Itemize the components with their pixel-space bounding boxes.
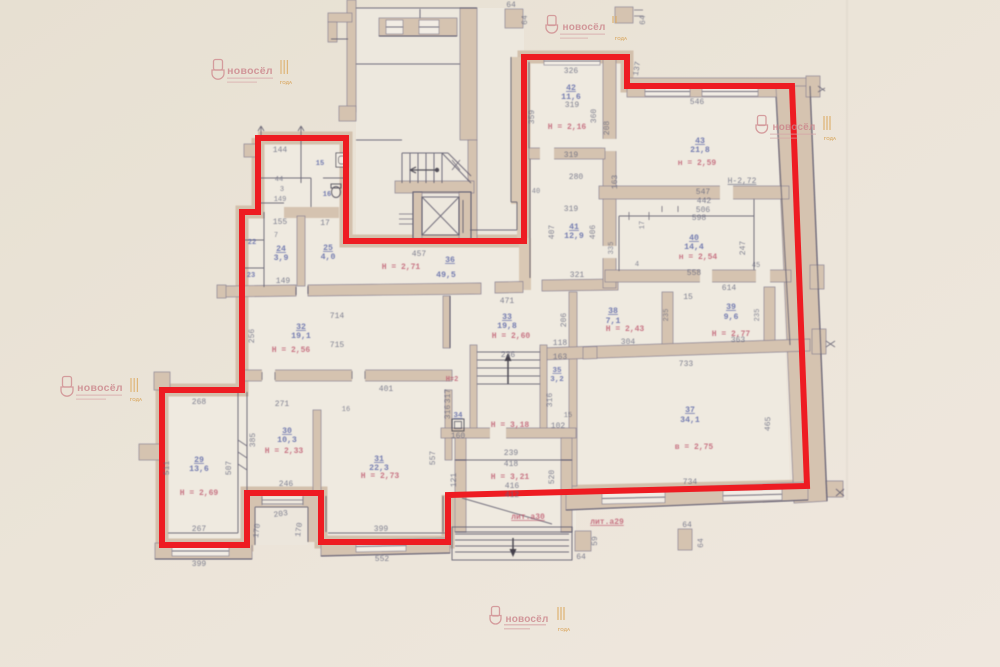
- svg-text:160: 160: [451, 432, 466, 441]
- svg-text:360: 360: [590, 109, 599, 124]
- svg-text:3,9: 3,9: [274, 254, 289, 263]
- svg-text:4: 4: [635, 261, 639, 269]
- svg-text:3,2: 3,2: [550, 376, 564, 384]
- svg-text:465: 465: [764, 416, 774, 431]
- svg-text:149: 149: [276, 277, 291, 286]
- svg-text:40: 40: [689, 234, 699, 243]
- svg-text:10,3: 10,3: [277, 436, 297, 445]
- svg-text:29: 29: [194, 456, 204, 465]
- svg-text:316: 316: [546, 393, 555, 408]
- svg-text:7: 7: [274, 232, 278, 240]
- svg-text:25: 25: [323, 244, 333, 253]
- svg-text:34,1: 34,1: [680, 416, 700, 425]
- svg-text:Н=2: Н=2: [446, 376, 459, 384]
- svg-text:19,1: 19,1: [291, 332, 311, 341]
- svg-text:Н-2,72: Н-2,72: [728, 177, 757, 186]
- svg-text:н = 2,54: н = 2,54: [679, 253, 718, 262]
- svg-text:Н = 2,71: Н = 2,71: [382, 263, 421, 272]
- svg-text:280: 280: [569, 173, 584, 182]
- svg-text:14,4: 14,4: [684, 243, 704, 252]
- svg-text:23: 23: [247, 272, 255, 280]
- svg-text:Н = 2,43: Н = 2,43: [606, 325, 645, 334]
- svg-text:16: 16: [323, 191, 331, 199]
- svg-text:40: 40: [532, 188, 540, 196]
- svg-text:399: 399: [374, 525, 389, 534]
- svg-text:в = 2,75: в = 2,75: [675, 443, 714, 452]
- svg-text:новосёл: новосёл: [227, 65, 273, 77]
- svg-text:64: 64: [506, 1, 516, 10]
- svg-text:471: 471: [500, 297, 515, 306]
- svg-text:новосёл: новосёл: [505, 614, 548, 625]
- svg-text:412: 412: [505, 491, 520, 500]
- svg-text:41: 41: [569, 223, 579, 232]
- svg-text:ГОДА: ГОДА: [615, 36, 628, 41]
- svg-text:118: 118: [553, 339, 568, 348]
- svg-text:21,8: 21,8: [690, 146, 710, 155]
- svg-text:457: 457: [412, 250, 427, 259]
- svg-text:335: 335: [608, 242, 616, 255]
- svg-text:ГОДА: ГОДА: [558, 627, 571, 632]
- svg-text:558: 558: [687, 269, 702, 278]
- svg-text:15: 15: [683, 293, 693, 302]
- svg-text:38: 38: [608, 307, 618, 316]
- svg-text:546: 546: [690, 98, 705, 107]
- svg-text:144: 144: [273, 146, 288, 155]
- svg-text:ГОДА: ГОДА: [130, 397, 143, 402]
- svg-text:17: 17: [639, 221, 647, 229]
- svg-text:3: 3: [280, 186, 284, 194]
- svg-text:15: 15: [316, 160, 324, 168]
- svg-text:34: 34: [453, 412, 463, 420]
- svg-text:30: 30: [282, 427, 292, 436]
- svg-text:36: 36: [445, 256, 455, 265]
- svg-text:Н = 2,69: Н = 2,69: [180, 489, 219, 498]
- svg-text:лит.а30: лит.а30: [511, 513, 545, 522]
- svg-text:19,8: 19,8: [497, 322, 517, 331]
- svg-text:155: 155: [273, 218, 288, 227]
- svg-text:4,0: 4,0: [321, 253, 336, 262]
- svg-text:Н = 2,33: Н = 2,33: [265, 447, 304, 456]
- svg-text:17: 17: [320, 219, 330, 228]
- svg-text:359: 359: [528, 110, 537, 125]
- svg-text:49,5: 49,5: [436, 271, 456, 280]
- svg-text:317: 317: [444, 389, 453, 404]
- svg-text:385: 385: [249, 433, 258, 448]
- svg-text:235: 235: [663, 309, 671, 322]
- svg-text:лит.а29: лит.а29: [590, 518, 624, 527]
- svg-text:271: 271: [275, 400, 290, 409]
- svg-text:45: 45: [752, 262, 760, 270]
- svg-text:37: 37: [685, 406, 695, 415]
- svg-text:новосёл: новосёл: [562, 22, 605, 33]
- svg-text:9,6: 9,6: [724, 313, 739, 322]
- svg-text:н = 2,59: н = 2,59: [678, 159, 717, 168]
- svg-text:547: 547: [696, 188, 711, 197]
- svg-text:102: 102: [551, 422, 566, 431]
- svg-text:64: 64: [682, 521, 692, 530]
- svg-text:64: 64: [521, 15, 530, 25]
- svg-text:442: 442: [697, 197, 712, 206]
- svg-text:406: 406: [589, 225, 598, 240]
- svg-text:64: 64: [697, 538, 706, 548]
- svg-text:235: 235: [754, 309, 762, 322]
- svg-text:15: 15: [564, 412, 572, 420]
- svg-text:319: 319: [565, 101, 580, 110]
- svg-text:715: 715: [330, 341, 345, 350]
- svg-text:256: 256: [248, 329, 257, 344]
- svg-text:326: 326: [564, 67, 579, 76]
- svg-text:552: 552: [375, 555, 390, 564]
- svg-text:316: 316: [444, 405, 453, 420]
- svg-text:22: 22: [248, 239, 256, 247]
- svg-text:ГОДА: ГОДА: [824, 136, 837, 141]
- svg-text:31: 31: [374, 455, 384, 464]
- svg-text:42: 42: [566, 84, 576, 93]
- svg-text:507: 507: [225, 461, 234, 476]
- svg-text:Н = 2,73: Н = 2,73: [361, 472, 400, 481]
- svg-text:557: 557: [429, 451, 438, 466]
- svg-text:714: 714: [330, 312, 345, 321]
- svg-text:236: 236: [501, 351, 516, 360]
- svg-text:24: 24: [276, 245, 286, 254]
- svg-text:новосёл: новосёл: [772, 122, 815, 133]
- svg-text:598: 598: [692, 214, 707, 223]
- svg-text:12,9: 12,9: [564, 232, 584, 241]
- svg-text:319: 319: [564, 151, 579, 160]
- svg-text:267: 267: [192, 525, 207, 534]
- svg-text:614: 614: [722, 284, 737, 293]
- svg-text:511: 511: [163, 461, 172, 476]
- svg-text:Н = 2,56: Н = 2,56: [272, 346, 311, 355]
- svg-text:64: 64: [639, 15, 648, 25]
- svg-text:121: 121: [450, 473, 459, 488]
- svg-text:43: 43: [695, 137, 705, 146]
- svg-text:39: 39: [726, 303, 736, 312]
- svg-text:319: 319: [564, 205, 579, 214]
- svg-text:734: 734: [683, 478, 698, 487]
- svg-text:новосёл: новосёл: [77, 382, 123, 394]
- svg-text:363: 363: [731, 336, 746, 345]
- svg-text:16: 16: [342, 406, 350, 414]
- svg-text:Н = 2,60: Н = 2,60: [492, 332, 531, 341]
- svg-text:ГОДА: ГОДА: [280, 80, 293, 85]
- svg-text:520: 520: [548, 470, 557, 485]
- svg-text:246: 246: [279, 480, 294, 489]
- svg-text:401: 401: [379, 385, 394, 394]
- svg-text:33: 33: [502, 313, 512, 322]
- svg-text:Н = 3,21: Н = 3,21: [491, 473, 530, 482]
- svg-text:206: 206: [560, 313, 569, 328]
- svg-text:35: 35: [552, 367, 562, 375]
- svg-text:304: 304: [621, 338, 636, 347]
- svg-text:208: 208: [603, 121, 612, 136]
- svg-text:407: 407: [548, 225, 557, 240]
- svg-text:Н = 3,18: Н = 3,18: [491, 421, 530, 430]
- svg-text:239: 239: [504, 449, 519, 458]
- svg-text:149: 149: [274, 196, 287, 204]
- svg-text:733: 733: [679, 360, 694, 369]
- svg-text:268: 268: [192, 398, 207, 407]
- svg-text:416: 416: [505, 482, 520, 491]
- svg-text:163: 163: [553, 353, 568, 362]
- svg-text:44: 44: [275, 176, 283, 184]
- svg-text:13,6: 13,6: [189, 465, 209, 474]
- svg-text:64: 64: [576, 553, 586, 562]
- svg-text:163: 163: [611, 175, 620, 190]
- svg-text:247: 247: [739, 241, 748, 256]
- svg-text:Н = 2,16: Н = 2,16: [548, 123, 587, 132]
- svg-text:59: 59: [591, 536, 600, 546]
- svg-text:32: 32: [296, 323, 306, 332]
- svg-text:418: 418: [504, 460, 519, 469]
- svg-text:321: 321: [570, 271, 585, 280]
- svg-text:399: 399: [192, 560, 207, 569]
